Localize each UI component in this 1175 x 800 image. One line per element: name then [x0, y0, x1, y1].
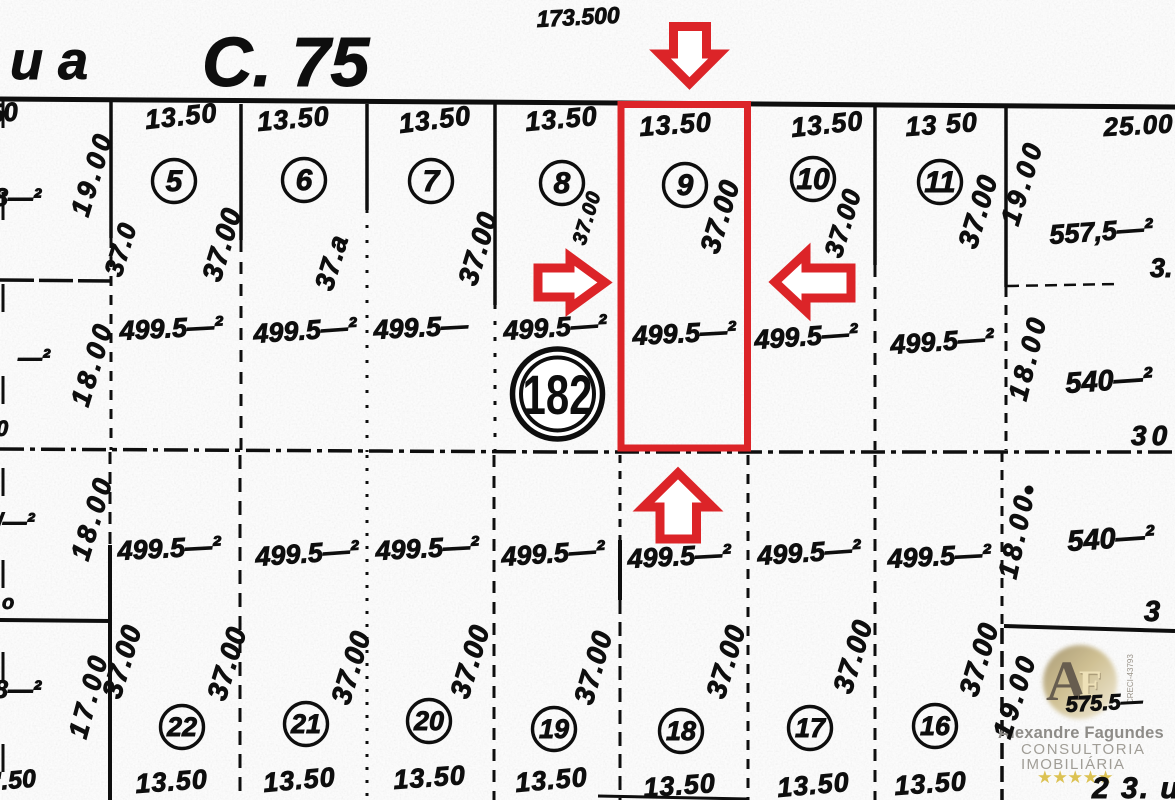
svg-text:19: 19	[539, 714, 569, 744]
svg-text:8—²: 8—²	[0, 184, 42, 212]
svg-text:13.50: 13.50	[524, 101, 599, 137]
svg-text:o: o	[2, 592, 14, 614]
svg-text:499.5—²: 499.5—²	[118, 311, 225, 346]
svg-text:499.5—²: 499.5—²	[626, 539, 733, 574]
svg-text:13.50: 13.50	[256, 101, 331, 137]
svg-text:21: 21	[290, 709, 321, 739]
svg-text:10: 10	[796, 163, 830, 196]
svg-text:13.50: 13.50	[134, 764, 208, 799]
svg-text:182: 182	[523, 363, 593, 426]
svg-text:499.5—: 499.5—	[372, 310, 470, 345]
svg-text:173.500: 173.500	[536, 2, 621, 32]
svg-text:9: 9	[677, 169, 694, 202]
svg-text:13.50: 13.50	[638, 107, 712, 142]
svg-text:17: 17	[795, 713, 827, 743]
svg-text:Alexandre Fagundes: Alexandre Fagundes	[998, 724, 1164, 742]
svg-text:0: 0	[0, 416, 9, 441]
svg-text:13 50: 13 50	[904, 107, 978, 142]
svg-text:a: a	[58, 31, 88, 91]
svg-text:30: 30	[1131, 420, 1172, 451]
svg-text:22: 22	[166, 712, 197, 742]
svg-text:13.50: 13.50	[392, 760, 466, 795]
svg-text:C. 75: C. 75	[202, 23, 370, 101]
svg-text:8: 8	[554, 167, 571, 200]
svg-text:13.50: 13.50	[893, 766, 967, 800]
svg-text:499.5—²: 499.5—²	[116, 531, 223, 566]
svg-text:13.50: 13.50	[514, 762, 589, 798]
svg-text:18: 18	[666, 716, 696, 746]
svg-text:6: 6	[296, 164, 313, 197]
svg-text:13.50: 13.50	[642, 768, 716, 800]
svg-text:540—²: 540—²	[1066, 520, 1156, 558]
svg-text:540—²: 540—²	[1064, 362, 1154, 400]
svg-text:—²: —²	[17, 345, 51, 372]
svg-text:25.00: 25.00	[1102, 108, 1175, 142]
svg-text:8—²: 8—²	[0, 676, 42, 704]
svg-text:20: 20	[413, 706, 444, 736]
svg-text:7: 7	[423, 165, 441, 198]
svg-text:u: u	[10, 31, 43, 91]
svg-text:3.: 3.	[1150, 253, 1173, 283]
svg-text:16: 16	[920, 711, 951, 741]
svg-text:3: 3	[1144, 596, 1160, 628]
svg-text:2 3. u: 2 3. u	[1091, 772, 1175, 800]
svg-text:13.50: 13.50	[776, 767, 851, 800]
svg-text:11: 11	[924, 166, 955, 199]
svg-text:'.50: '.50	[0, 765, 37, 796]
svg-text:499.5—²: 499.5—²	[374, 531, 481, 566]
svg-text:/—²: /—²	[0, 509, 36, 536]
svg-text:575.5—: 575.5—	[1065, 688, 1144, 717]
svg-text:499.5—²: 499.5—²	[631, 316, 738, 351]
svg-text:499.5—²: 499.5—²	[886, 539, 993, 574]
svg-text:13.50: 13.50	[262, 762, 337, 798]
svg-text:5: 5	[166, 165, 184, 198]
